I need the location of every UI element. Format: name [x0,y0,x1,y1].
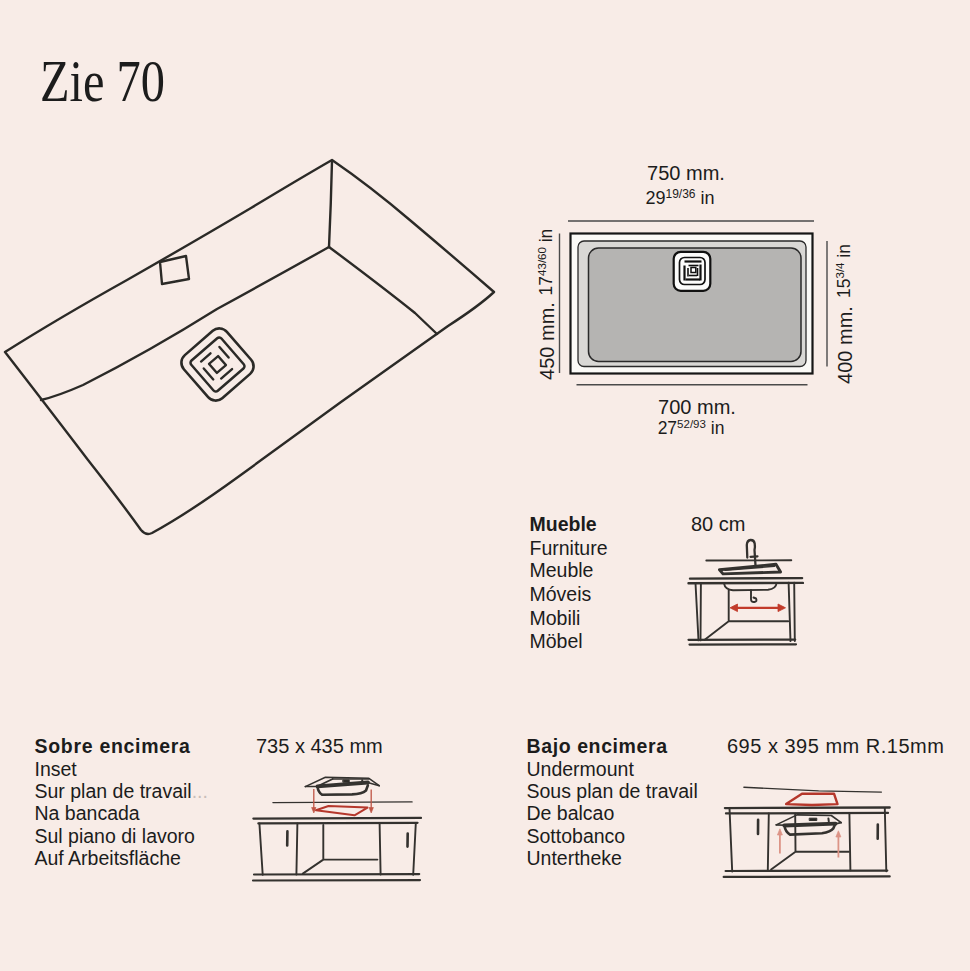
svg-text:80 cm: 80 cm [691,513,745,535]
svg-text:Auf Arbeitsfläche: Auf Arbeitsfläche [35,847,181,869]
svg-text:Inset: Inset [35,758,78,780]
svg-text:Sous plan de travail: Sous plan de travail [527,780,698,802]
svg-text:Sul piano di lavoro: Sul piano di lavoro [35,825,196,847]
svg-text:Undermount: Undermount [527,758,635,780]
svg-text:Na bancada: Na bancada [35,802,140,824]
svg-text:Mobili: Mobili [530,607,581,629]
svg-text:Zie 70: Zie 70 [40,48,165,114]
svg-text:Meuble: Meuble [530,559,594,581]
svg-text:Sobre encimera: Sobre encimera [35,735,191,757]
svg-text:750 mm.: 750 mm. [647,162,725,184]
svg-text:Móveis: Móveis [530,583,592,605]
svg-text:Mueble: Mueble [530,513,597,535]
svg-text:700 mm.: 700 mm. [658,396,736,418]
svg-text:Möbel: Möbel [530,630,583,652]
svg-text:Bajo encimera: Bajo encimera [527,735,668,757]
svg-text:450 mm.: 450 mm. [536,302,558,380]
svg-text:Furniture: Furniture [530,537,608,559]
svg-text:Untertheke: Untertheke [527,847,622,869]
svg-text:735 x 435 mm: 735 x 435 mm [256,735,383,757]
svg-text:Sur plan de travail...: Sur plan de travail... [35,780,208,802]
svg-text:De balcao: De balcao [527,802,615,824]
svg-text:400 mm.: 400 mm. [834,306,856,384]
svg-text:695 x 395 mm R.15mm: 695 x 395 mm R.15mm [727,735,944,757]
svg-text:Sottobanco: Sottobanco [527,825,626,847]
